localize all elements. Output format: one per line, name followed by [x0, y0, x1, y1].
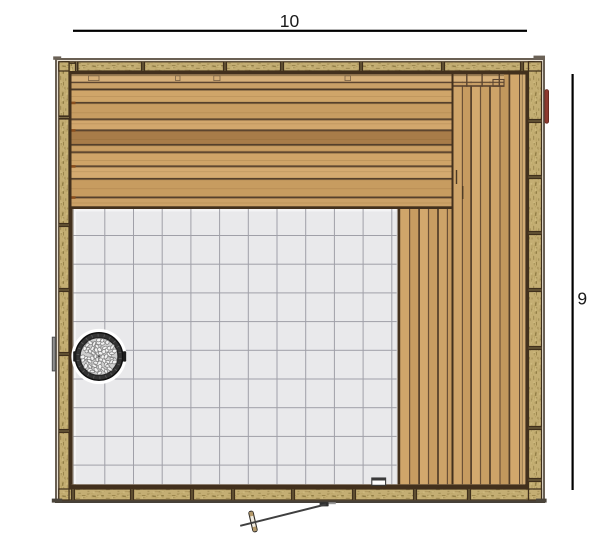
- svg-text:9: 9: [577, 289, 587, 309]
- svg-text:10: 10: [280, 11, 300, 31]
